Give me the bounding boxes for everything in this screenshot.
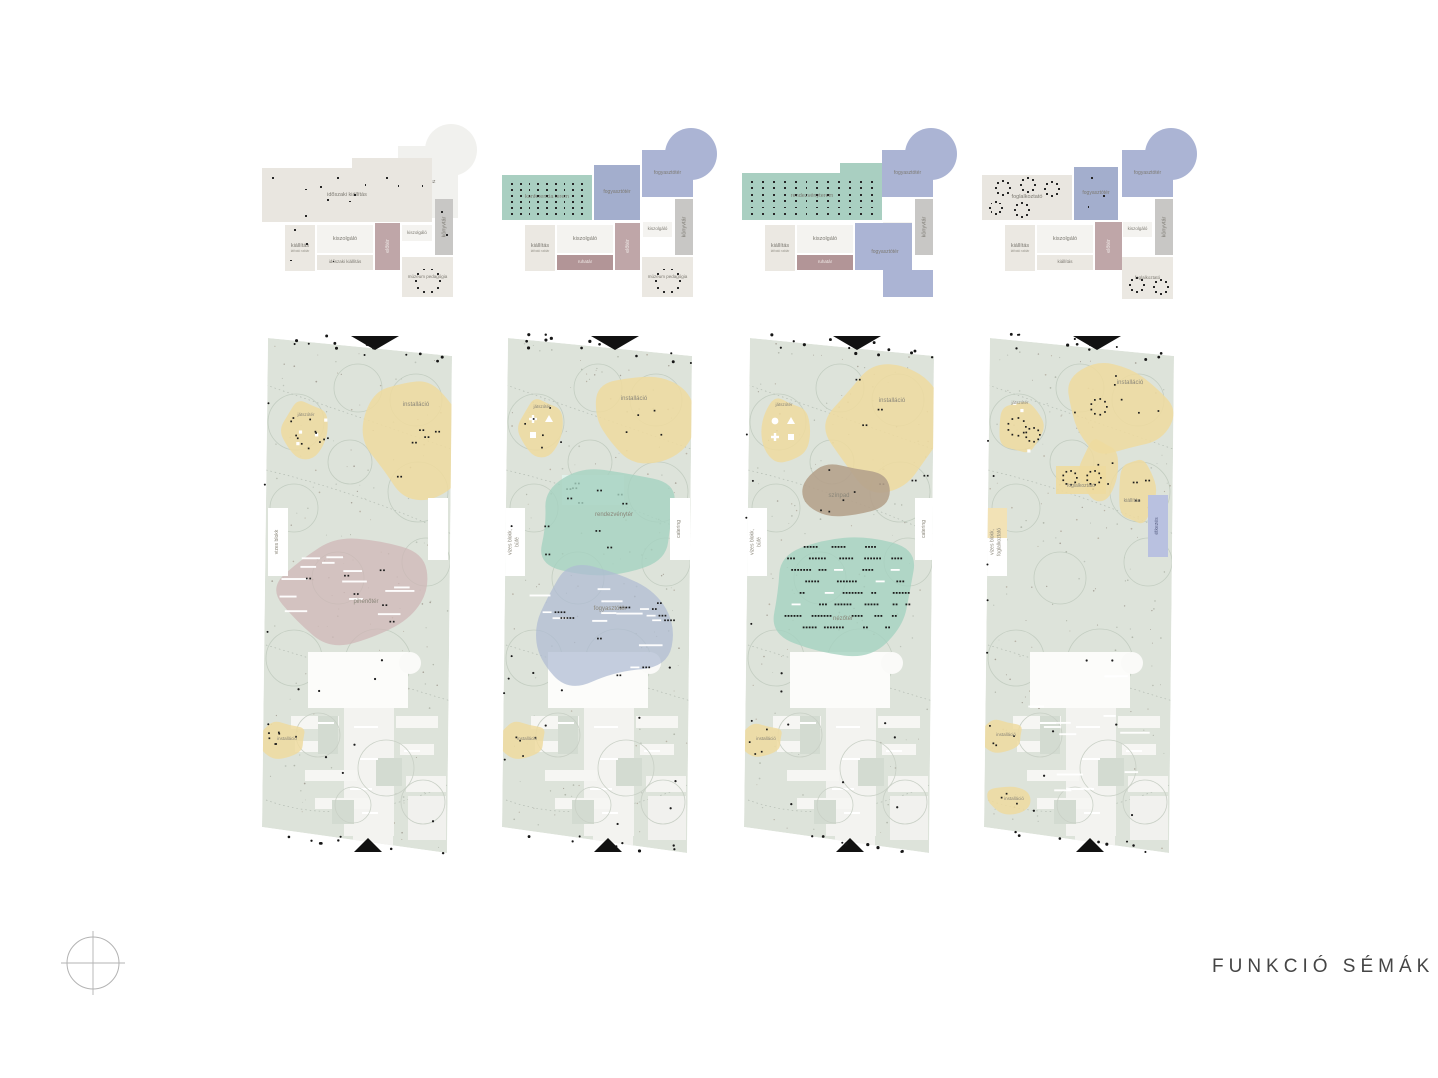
furniture-dot [572, 207, 574, 209]
furniture-dot [305, 189, 307, 191]
room-ruhatár: ruhatár [557, 255, 613, 270]
room-kiállítás: kiállításlátható raktár [285, 225, 315, 271]
furniture-dot [529, 195, 531, 197]
furniture-dot [431, 269, 433, 271]
bench-line [886, 750, 902, 752]
furniture-dot [520, 207, 522, 209]
furniture-dot [784, 213, 786, 215]
zone-label: installáció [756, 736, 776, 741]
zone-label: játszótér [1010, 400, 1029, 405]
furniture-dot [1009, 187, 1011, 189]
bench-line [800, 722, 816, 724]
furniture-dot [555, 201, 557, 203]
furniture-dot [564, 183, 566, 185]
furniture-dot [1007, 182, 1009, 184]
furniture-dot [446, 234, 448, 236]
site-strip: játszótérinstallációszínpadnézőtérinstal… [740, 338, 946, 853]
side-facility-label: vizes blokk,büfé [747, 508, 767, 576]
furniture-dot [849, 213, 851, 215]
bench-line [836, 726, 860, 728]
furniture-dot [860, 213, 862, 215]
side-facility-text: vizes blokk, [508, 529, 514, 555]
side-facility-text: vizes blokk [274, 529, 280, 554]
furniture-dot [860, 187, 862, 189]
furniture-dot [995, 213, 997, 215]
furniture-dot [1056, 183, 1058, 185]
furniture-dot [784, 187, 786, 189]
furniture-dot [511, 207, 513, 209]
room-előtér: előtér [615, 223, 640, 270]
furniture-dot [520, 195, 522, 197]
side-facility-label: catering [915, 498, 935, 560]
room-kiszolgáló: kiszolgáló [643, 222, 672, 237]
side-facility-label: catering [670, 498, 690, 560]
furniture-dot [290, 260, 292, 262]
side-facility-label: vizes blokk,foglalkoztató [987, 508, 1007, 576]
bench-line [602, 812, 618, 814]
furniture-dot [511, 195, 513, 197]
furniture-dot [871, 187, 873, 189]
furniture-dot [1016, 214, 1018, 216]
floor-plan-4: foglalkoztatófogyasztótérfogyasztótérkis… [975, 122, 1210, 312]
room-könyvtár: könyvtár [1155, 199, 1173, 255]
furniture-dot [663, 269, 665, 271]
furniture-dot [762, 200, 764, 202]
room-foglalkoztató: foglalkoztató [1122, 257, 1173, 299]
furniture-dot [555, 195, 557, 197]
room-label: előtér [624, 238, 630, 256]
zone-label: installáció [1004, 796, 1024, 801]
furniture-dot [871, 194, 873, 196]
site-strip: játszótérinstallációrendezvénytérfogyasz… [498, 338, 695, 853]
furniture-dot [423, 269, 425, 271]
room-kiállítás: kiállítás [1037, 255, 1093, 270]
room-kiállítás: kiállításlátható raktár [765, 225, 795, 271]
furniture-dot [1002, 180, 1004, 182]
furniture-dot [272, 177, 274, 179]
furniture-dot [751, 194, 753, 196]
furniture-dot [422, 185, 424, 187]
room-label: előtér [1105, 237, 1111, 255]
furniture-dot [1027, 177, 1029, 179]
furniture-dot [1051, 195, 1053, 197]
room-időszaki kiállítás: időszaki kiállítás [317, 255, 373, 270]
furniture-dot [555, 207, 557, 209]
furniture-dot [671, 291, 673, 293]
presentation-sheet: teraszidőszaki kiállításkiállításlátható… [0, 0, 1438, 1078]
furniture-dot [555, 213, 557, 215]
furniture-dot [1136, 277, 1138, 279]
furniture-dot [1091, 177, 1093, 179]
furniture-dot [572, 189, 574, 191]
furniture-dot [305, 215, 307, 217]
side-facility-label: étkezés [1148, 495, 1168, 557]
furniture-dot [555, 189, 557, 191]
room-label: kiszolgáló [646, 227, 670, 232]
furniture-dot [1032, 189, 1034, 191]
furniture-dot [816, 200, 818, 202]
bench-line [362, 812, 378, 814]
furniture-dot [784, 200, 786, 202]
bench-line [1126, 750, 1142, 752]
zone-label: színpad [828, 493, 849, 499]
furniture-dot [520, 213, 522, 215]
furniture-dot [1021, 216, 1023, 218]
room-label: ruhatár [816, 260, 834, 265]
furniture-dot [546, 189, 548, 191]
furniture-dot [1032, 179, 1034, 181]
bench-line [558, 722, 574, 724]
room-sublabel: látható raktár [1011, 250, 1030, 254]
furniture-dot [546, 195, 548, 197]
furniture-dot [1165, 281, 1167, 283]
furniture-dot [327, 199, 329, 201]
furniture-dot [1028, 209, 1030, 211]
furniture-dot [871, 213, 873, 215]
furniture-dot [806, 207, 808, 209]
furniture-dot [991, 203, 993, 205]
furniture-dot [572, 183, 574, 185]
furniture-dot [1153, 286, 1155, 288]
room-sublabel: látható raktár [771, 250, 790, 254]
room-label: kiszolgáló [571, 236, 599, 242]
room-fogyasztótér: fogyasztótér [1074, 167, 1118, 220]
room-előtér: előtér [375, 223, 400, 270]
room-label: fogyasztótér [652, 171, 683, 177]
furniture-dot [1103, 195, 1105, 197]
floor-plan-2: konferencia teremfogyasztótérfogyasztóté… [495, 122, 730, 312]
room-label: foglalkoztató [1010, 194, 1045, 200]
furniture-dot [439, 280, 441, 282]
furniture-dot [816, 181, 818, 183]
furniture-dot [871, 181, 873, 183]
room-kiszolgáló: kiszolgáló [317, 225, 373, 253]
zone-label: installáció [879, 398, 906, 404]
furniture-dot [663, 291, 665, 293]
zone-label: fogyasztótér [594, 606, 627, 612]
zone-label: installáció [996, 732, 1016, 737]
room-időszaki kiállítás: időszaki kiállítás [262, 168, 432, 222]
bench-line [1082, 758, 1100, 760]
furniture-dot [564, 207, 566, 209]
furniture-dot [995, 187, 997, 189]
room-sublabel: látható raktár [291, 250, 310, 254]
furniture-dot [294, 229, 296, 231]
furniture-dot [564, 201, 566, 203]
room-label: kiállítás [1009, 243, 1031, 249]
furniture-dot [581, 201, 583, 203]
furniture-dot [520, 183, 522, 185]
site-plan-3: játszótérinstallációszínpadnézőtérinstal… [740, 330, 950, 870]
furniture-dot [415, 280, 417, 282]
furniture-dot [784, 207, 786, 209]
zone-label: rendezvénytér [595, 512, 633, 518]
room-label: kiállítás [769, 243, 791, 249]
furniture-dot [511, 213, 513, 215]
room-label: időszaki kiállítás [325, 192, 369, 198]
room-extra [883, 270, 933, 297]
furniture-dot [1051, 181, 1053, 183]
furniture-dot [537, 183, 539, 185]
furniture-dot [991, 211, 993, 213]
furniture-dot [572, 195, 574, 197]
furniture-dot [849, 207, 851, 209]
site-strip: játszótérinstallációpihenőtérinstalláció… [258, 338, 468, 853]
room-label: múzeum pedagógia [646, 275, 690, 280]
furniture-dot [581, 183, 583, 185]
furniture-dot [795, 200, 797, 202]
bench-line [644, 750, 660, 752]
furniture-dot [1167, 286, 1169, 288]
furniture-dot [1026, 214, 1028, 216]
room-ruhatár: ruhatár [797, 255, 853, 270]
furniture-dot [816, 207, 818, 209]
furniture-dot [762, 194, 764, 196]
furniture-dot [423, 291, 425, 293]
furniture-dot [572, 213, 574, 215]
furniture-dot [337, 177, 339, 179]
side-facility-text: foglalkoztató [996, 528, 1002, 556]
zone-label: pihenőtér [353, 599, 378, 605]
zone-label: játszótér [774, 402, 793, 407]
furniture-dot [849, 194, 851, 196]
side-facility-text: catering [676, 520, 682, 538]
furniture-dot [398, 185, 400, 187]
furniture-dot [529, 201, 531, 203]
furniture-dot [1141, 289, 1143, 291]
side-facility-text: étkezés [1154, 517, 1160, 535]
side-facility-text: vizes blokk, [750, 529, 756, 555]
furniture-dot [1160, 293, 1162, 295]
furniture-dot [386, 177, 388, 179]
room-label: könyvtár [1161, 215, 1167, 240]
furniture-dot [1020, 184, 1022, 186]
furniture-dot [751, 207, 753, 209]
furniture-dot [1022, 179, 1024, 181]
furniture-dot [1034, 184, 1036, 186]
furniture-dot [871, 207, 873, 209]
furniture-dot [849, 187, 851, 189]
bench-line [360, 758, 378, 760]
zone-label: játszótér [532, 404, 551, 409]
furniture-dot [546, 207, 548, 209]
furniture-dot [989, 207, 991, 209]
zone-label: foglalkoztató [1067, 483, 1095, 489]
furniture-dot [806, 181, 808, 183]
furniture-dot [581, 213, 583, 215]
room-sublabel: látható raktár [531, 250, 550, 254]
furniture-dot [1056, 193, 1058, 195]
bench-line [318, 722, 334, 724]
furniture-dot [365, 184, 367, 186]
furniture-dot [1014, 209, 1016, 211]
room-kiszolgáló: kiszolgáló [557, 225, 613, 253]
furniture-dot [997, 192, 999, 194]
furniture-dot [677, 273, 679, 275]
furniture-dot [806, 213, 808, 215]
furniture-dot [679, 280, 681, 282]
furniture-dot [1155, 281, 1157, 283]
furniture-dot [795, 213, 797, 215]
room-label: kiszolgáló [331, 236, 359, 242]
furniture-dot [529, 207, 531, 209]
room-label: kiszolgáló [1126, 227, 1150, 232]
furniture-dot [997, 182, 999, 184]
room-előtér: előtér [1095, 222, 1122, 270]
furniture-dot [806, 200, 808, 202]
furniture-dot [838, 213, 840, 215]
furniture-dot [795, 194, 797, 196]
room-kiszolgáló: kiszolgáló [1037, 225, 1093, 253]
room-kiállítás: kiállításlátható raktár [1005, 225, 1035, 271]
furniture-dot [431, 291, 433, 293]
side-facility-text: catering [921, 520, 927, 538]
furniture-dot [511, 189, 513, 191]
bench-line [594, 726, 618, 728]
furniture-dot [827, 207, 829, 209]
furniture-dot [995, 201, 997, 203]
room-fogyasztótér [855, 223, 912, 270]
furniture-dot [529, 183, 531, 185]
furniture-dot [349, 201, 351, 203]
site-strip: játszótérinstallációfoglalkoztatókiállít… [980, 338, 1176, 853]
furniture-dot [806, 194, 808, 196]
zone-label: installáció [277, 736, 297, 741]
furniture-dot [511, 183, 513, 185]
furniture-dot [354, 194, 356, 196]
zone-rendezvénytér: rendezvénytér [541, 469, 680, 575]
furniture-dot [1001, 207, 1003, 209]
room-fogyasztótér: fogyasztótér [642, 150, 693, 197]
furniture-dot [441, 211, 443, 213]
room-label: múzeum pedagógia [406, 275, 450, 280]
furniture-dot [860, 200, 862, 202]
furniture-dot [849, 181, 851, 183]
sheet-title: FUNKCIÓ SÉMÁK [1212, 956, 1434, 978]
room-label: könyvtár [681, 215, 687, 240]
furniture-dot [417, 287, 419, 289]
furniture-dot [773, 194, 775, 196]
furniture-dot [1046, 183, 1048, 185]
furniture-dot [537, 201, 539, 203]
furniture-dot [816, 213, 818, 215]
zone-label: installáció [621, 396, 648, 402]
furniture-dot [784, 181, 786, 183]
floor-plan-3: rendezvényteremfogyasztótérkiszolgálókön… [735, 122, 970, 312]
site-plan-1: játszótérinstallációpihenőtérinstalláció… [258, 330, 468, 870]
furniture-dot [849, 200, 851, 202]
furniture-dot [437, 273, 439, 275]
room-fogyasztótér: fogyasztótér [1122, 150, 1173, 197]
furniture-dot [1016, 204, 1018, 206]
side-facility-label: vizes blokk,büfé [505, 508, 525, 576]
furniture-dot [999, 203, 1001, 205]
furniture-dot [795, 187, 797, 189]
furniture-dot [871, 200, 873, 202]
room-konferencia terem: konferencia terem [502, 175, 592, 220]
furniture-dot [762, 207, 764, 209]
furniture-dot [827, 200, 829, 202]
furniture-dot [1007, 192, 1009, 194]
furniture-dot [1160, 279, 1162, 281]
furniture-dot [655, 280, 657, 282]
furniture-dot [529, 213, 531, 215]
furniture-dot [773, 181, 775, 183]
furniture-dot [546, 201, 548, 203]
furniture-dot [806, 187, 808, 189]
furniture-dot [751, 181, 753, 183]
furniture-dot [795, 207, 797, 209]
zone-label: játszótér [296, 412, 315, 417]
room-label: ruhatár [576, 260, 594, 265]
furniture-dot [1143, 284, 1145, 286]
side-facility-text: büfé [514, 537, 520, 547]
bench-line [842, 758, 860, 760]
furniture-dot [1136, 291, 1138, 293]
furniture-dot [417, 273, 419, 275]
furniture-dot [1155, 291, 1157, 293]
survey-benchmark-icon [58, 928, 130, 1000]
furniture-dot [773, 213, 775, 215]
room-label: kiállítás [529, 243, 551, 249]
room-rendezvényterem: rendezvényterem [742, 173, 882, 220]
furniture-dot [816, 187, 818, 189]
furniture-dot [1027, 191, 1029, 193]
side-facility-label: vizes blokk [268, 508, 288, 576]
furniture-dot [860, 181, 862, 183]
furniture-dot [333, 261, 335, 263]
room-kiállítás: kiállításlátható raktár [525, 225, 555, 271]
bench-line [1076, 726, 1100, 728]
room-kiszolgáló: kiszolgáló [402, 225, 432, 241]
furniture-dot [537, 213, 539, 215]
room-fogyasztótér: fogyasztótér [594, 165, 640, 220]
bench-line [1084, 812, 1100, 814]
furniture-dot [860, 194, 862, 196]
furniture-dot [784, 194, 786, 196]
furniture-dot [751, 187, 753, 189]
furniture-dot [529, 189, 531, 191]
furniture-dot [564, 195, 566, 197]
floor-plan-1: teraszidőszaki kiállításkiállításlátható… [255, 122, 490, 312]
furniture-dot [564, 213, 566, 215]
furniture-dot [511, 201, 513, 203]
furniture-dot [1129, 284, 1131, 286]
furniture-dot [816, 194, 818, 196]
room-kiszolgáló: kiszolgáló [1123, 222, 1152, 237]
furniture-dot [564, 189, 566, 191]
furniture-dot [838, 187, 840, 189]
furniture-dot [437, 287, 439, 289]
furniture-dot [671, 269, 673, 271]
furniture-dot [520, 189, 522, 191]
zone-label: installáció [1117, 380, 1144, 386]
furniture-dot [1021, 202, 1023, 204]
furniture-dot [537, 189, 539, 191]
room-könyvtár: könyvtár [675, 199, 693, 255]
furniture-dot [320, 186, 322, 188]
zone-label: nézőtér [833, 616, 853, 622]
furniture-dot [546, 183, 548, 185]
furniture-dot [773, 187, 775, 189]
furniture-dot [537, 207, 539, 209]
furniture-dot [827, 187, 829, 189]
furniture-dot [1141, 279, 1143, 281]
furniture-dot [546, 213, 548, 215]
furniture-dot [827, 181, 829, 183]
room-notch [840, 163, 882, 173]
room-label: fogyasztótér [871, 249, 898, 255]
